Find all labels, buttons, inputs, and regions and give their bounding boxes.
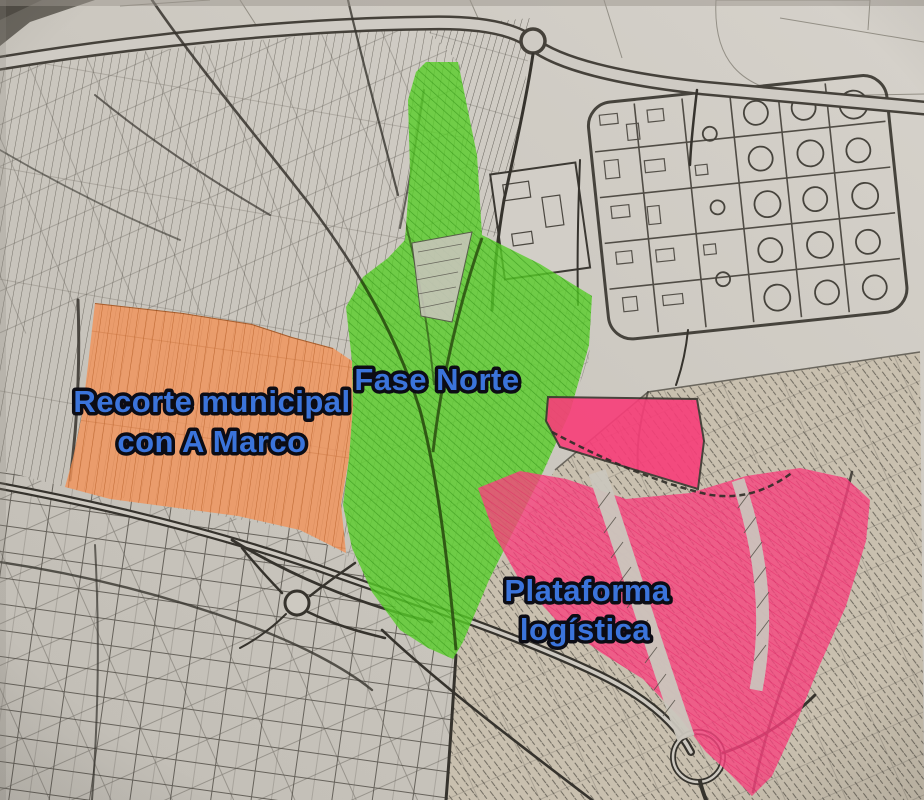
photo-artifacts	[0, 0, 924, 800]
map-photo: Recorte municipal con A Marco Fase Norte…	[0, 0, 924, 800]
map-image: Recorte municipal con A Marco Fase Norte…	[0, 0, 924, 800]
